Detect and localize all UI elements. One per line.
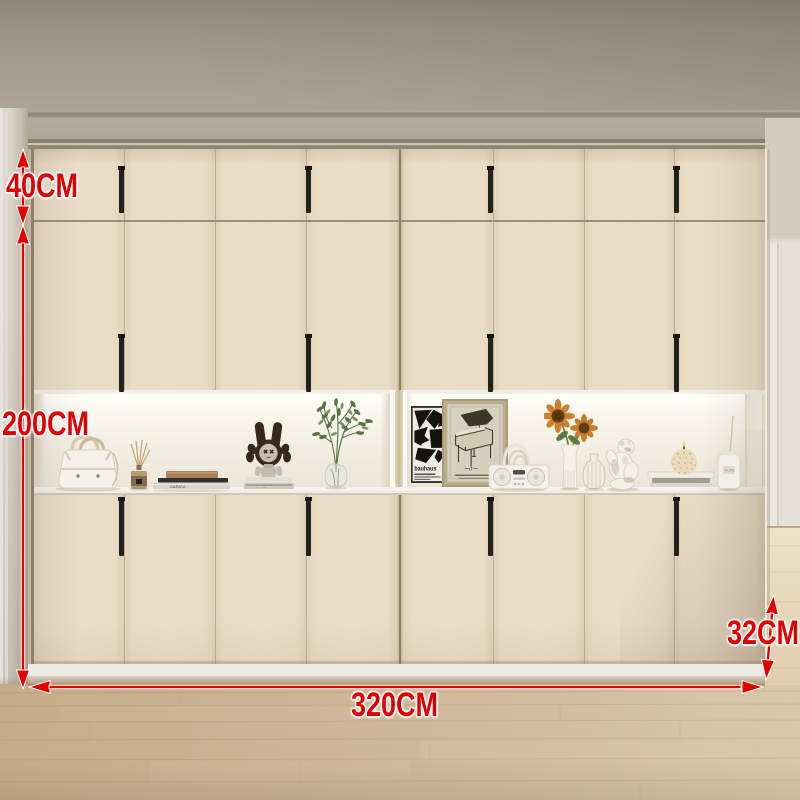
svg-text:KURZ: KURZ xyxy=(725,469,734,473)
svg-text:··· ·····: ··· ····· xyxy=(256,486,266,490)
svg-text:САЯАТА: САЯАТА xyxy=(170,484,186,489)
svg-text:∼д∼: ∼д∼ xyxy=(463,466,478,473)
svg-text:bauhaus: bauhaus xyxy=(414,466,436,472)
